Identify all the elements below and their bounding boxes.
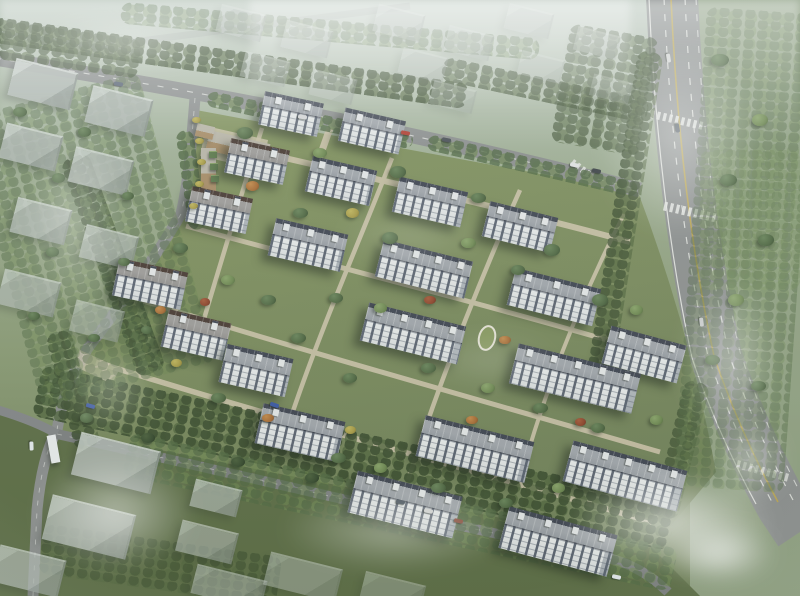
aerial-rendering-scene (0, 0, 800, 596)
car-layer (0, 0, 800, 596)
vehicle (665, 53, 670, 63)
vehicle (29, 441, 33, 450)
vehicle (85, 403, 95, 409)
vehicle (674, 123, 679, 133)
vehicle (441, 137, 451, 143)
vehicle (113, 81, 123, 86)
vehicle (423, 508, 433, 514)
vehicle (297, 114, 307, 120)
vehicle (453, 518, 463, 524)
vehicle (698, 317, 703, 326)
vehicle (269, 402, 279, 409)
vehicle (400, 130, 410, 136)
vehicle (591, 168, 601, 174)
vehicle (569, 162, 579, 168)
vehicle (395, 499, 405, 505)
vehicle (611, 574, 621, 580)
